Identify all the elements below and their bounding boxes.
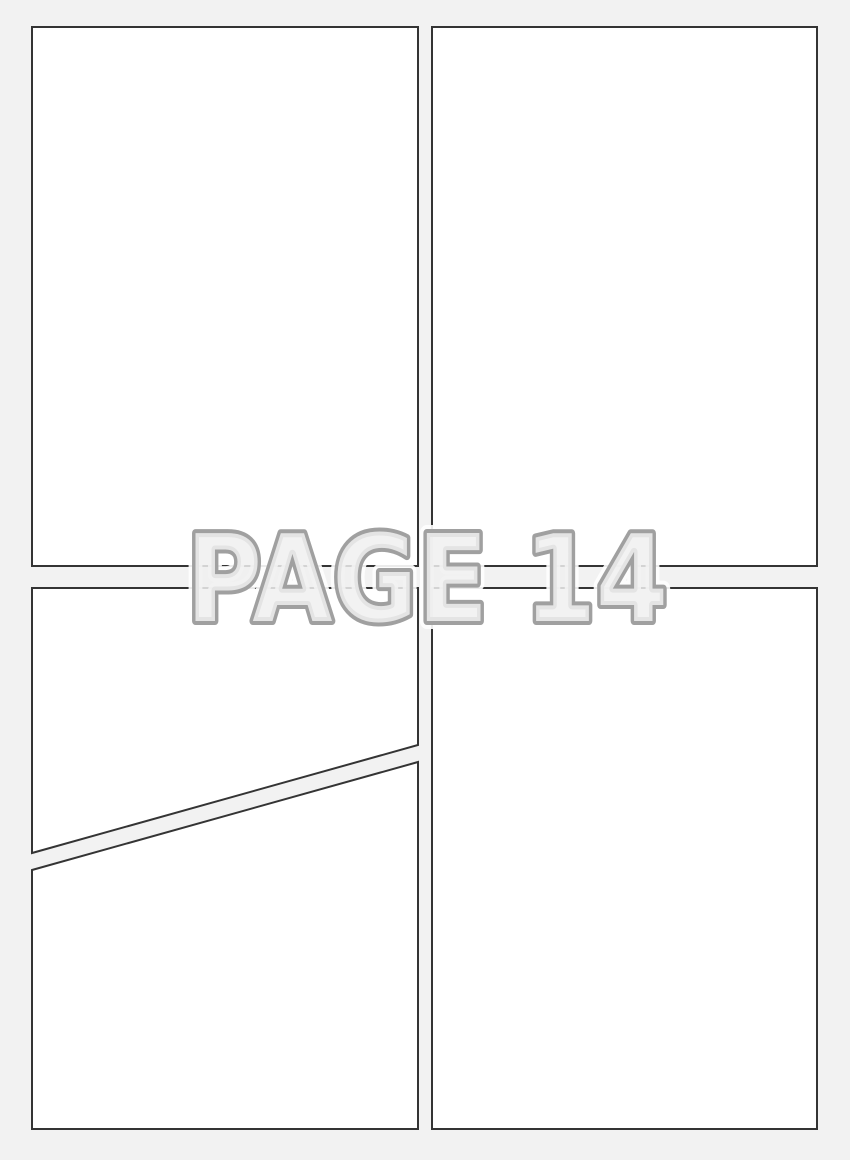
comic-panel-bottom-left-group xyxy=(31,587,419,1130)
comic-panel-top-left xyxy=(31,26,419,567)
comic-panel-bottom-right xyxy=(431,587,818,1130)
comic-page-template: PAGE 14 PAGE 14 xyxy=(0,0,850,1160)
comic-panel-top-right xyxy=(431,26,818,567)
